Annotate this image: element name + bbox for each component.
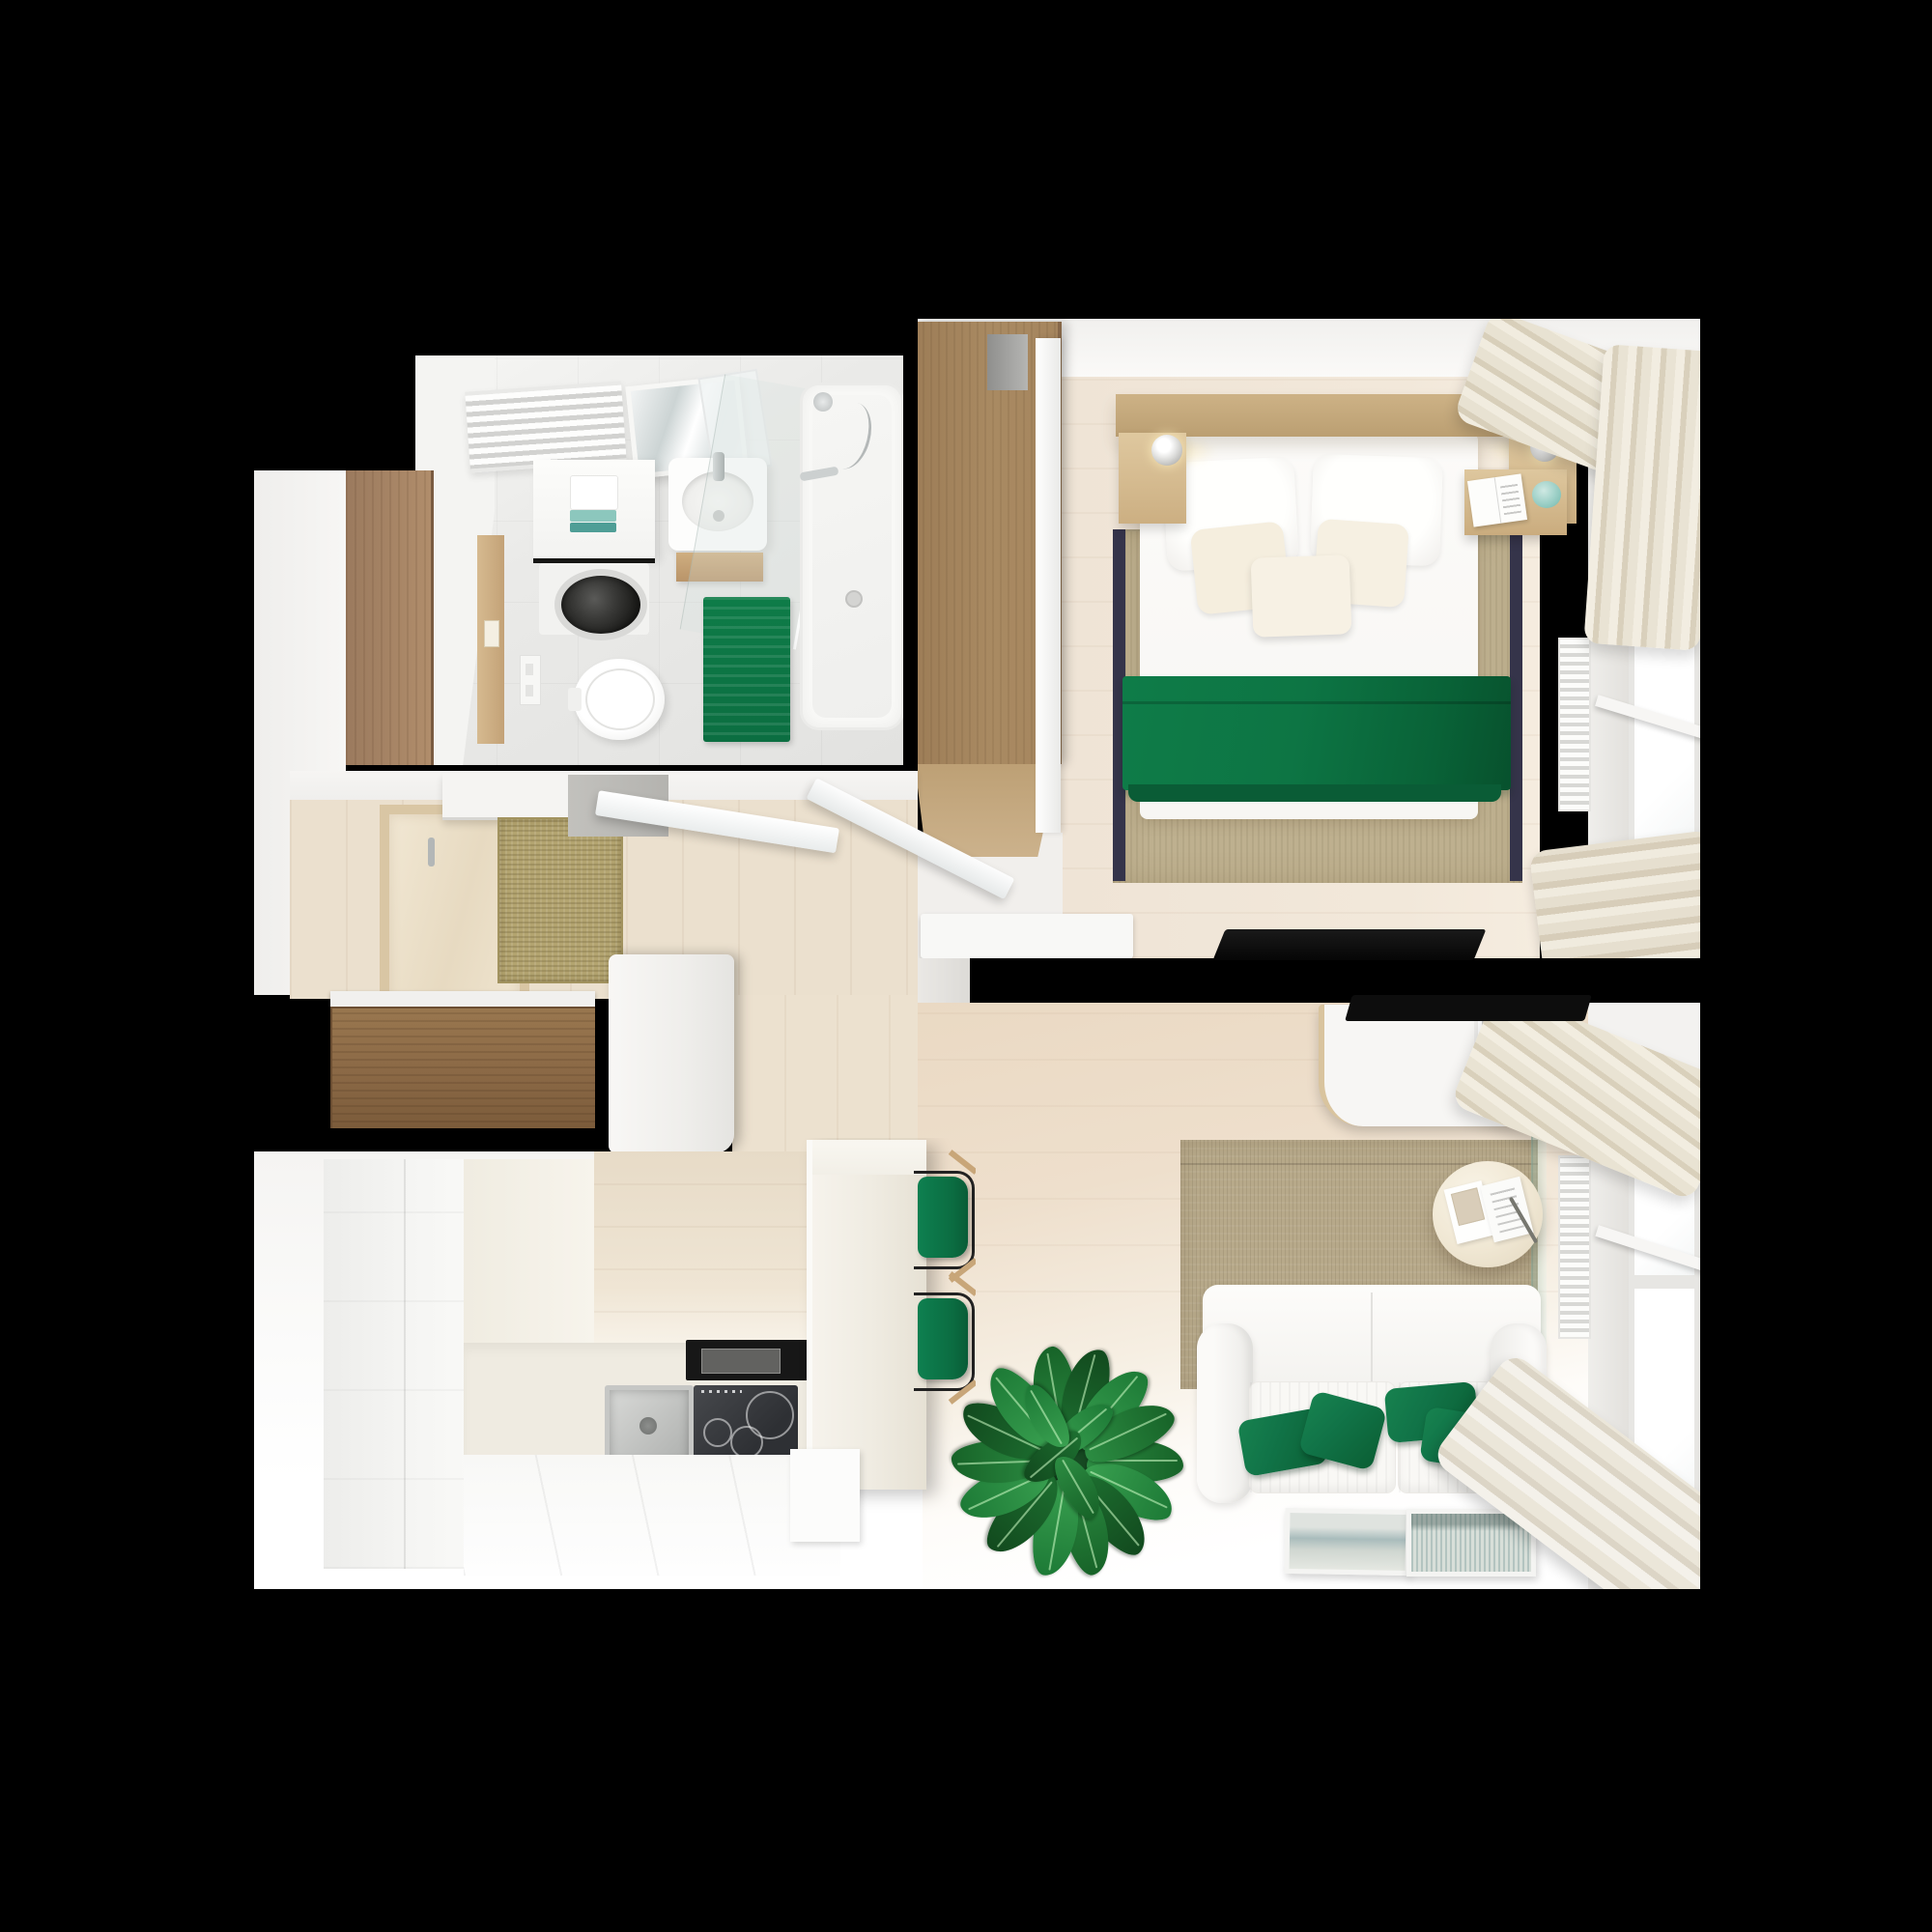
bathroom-door-jamb — [477, 535, 504, 744]
rug-border-stripe — [1510, 529, 1522, 881]
hob-ring — [730, 1426, 763, 1459]
hood-filter — [701, 1349, 781, 1374]
living-room — [918, 1003, 1700, 1589]
curtain-drape — [1583, 344, 1700, 651]
induction-hob — [694, 1385, 798, 1459]
living-room-tv — [1345, 995, 1592, 1021]
teal-towel — [570, 523, 616, 532]
corridor-floor — [732, 995, 918, 1154]
floor-plan-render — [0, 0, 1932, 1932]
range-hood — [686, 1340, 819, 1380]
teal-towel — [570, 510, 616, 522]
kitchen — [254, 1138, 976, 1589]
green-bed-throw — [1122, 676, 1511, 790]
stool-leg — [949, 1271, 976, 1296]
stool-seat — [918, 1177, 968, 1258]
shower-head — [813, 392, 833, 412]
sofa-armrest — [1197, 1323, 1253, 1503]
radiator — [1558, 638, 1591, 811]
cabinet-fronts — [464, 1455, 840, 1576]
nightstand — [1464, 469, 1567, 535]
radiator — [1558, 1155, 1591, 1339]
bedroom — [918, 319, 1700, 958]
ficus-plant — [952, 1346, 1183, 1582]
sink-drain — [639, 1417, 657, 1435]
island-step — [790, 1449, 860, 1542]
coat-hook — [428, 838, 435, 867]
bathroom-door — [346, 470, 434, 765]
pillow — [1251, 554, 1352, 638]
hob-ring — [703, 1418, 732, 1447]
teal-knot-decor — [1532, 481, 1561, 508]
toilet-hinge — [568, 688, 582, 711]
round-side-table — [1433, 1161, 1543, 1267]
stool-seat — [918, 1298, 968, 1379]
folded-towel — [570, 475, 618, 510]
bedroom-tv — [1213, 929, 1487, 960]
toilet — [574, 659, 665, 740]
kitchen-island — [807, 1140, 926, 1490]
sideboard-top — [330, 991, 595, 1007]
half-wall-partition — [609, 954, 734, 1153]
bar-stool — [918, 1293, 976, 1385]
tub-drain — [845, 590, 863, 608]
stool-leg — [949, 1379, 976, 1405]
doormat — [497, 817, 623, 983]
laundry-counter — [533, 460, 655, 558]
bar-stool — [918, 1171, 976, 1264]
open-book — [1467, 473, 1527, 526]
stool-leg — [949, 1150, 976, 1175]
bathroom — [415, 355, 903, 765]
washer-drum — [554, 569, 647, 640]
green-bath-mat — [703, 597, 790, 742]
washing-machine — [539, 563, 649, 635]
bedside-lamp — [1151, 435, 1182, 466]
framed-print — [1284, 1508, 1410, 1576]
bedroom-sliding-door — [1036, 338, 1061, 833]
light-switch — [484, 620, 499, 647]
sliding-door-bracket — [987, 334, 1028, 390]
wood-sideboard — [330, 1007, 599, 1132]
flush-plate — [520, 655, 541, 705]
curtain-bunch — [1529, 830, 1700, 958]
